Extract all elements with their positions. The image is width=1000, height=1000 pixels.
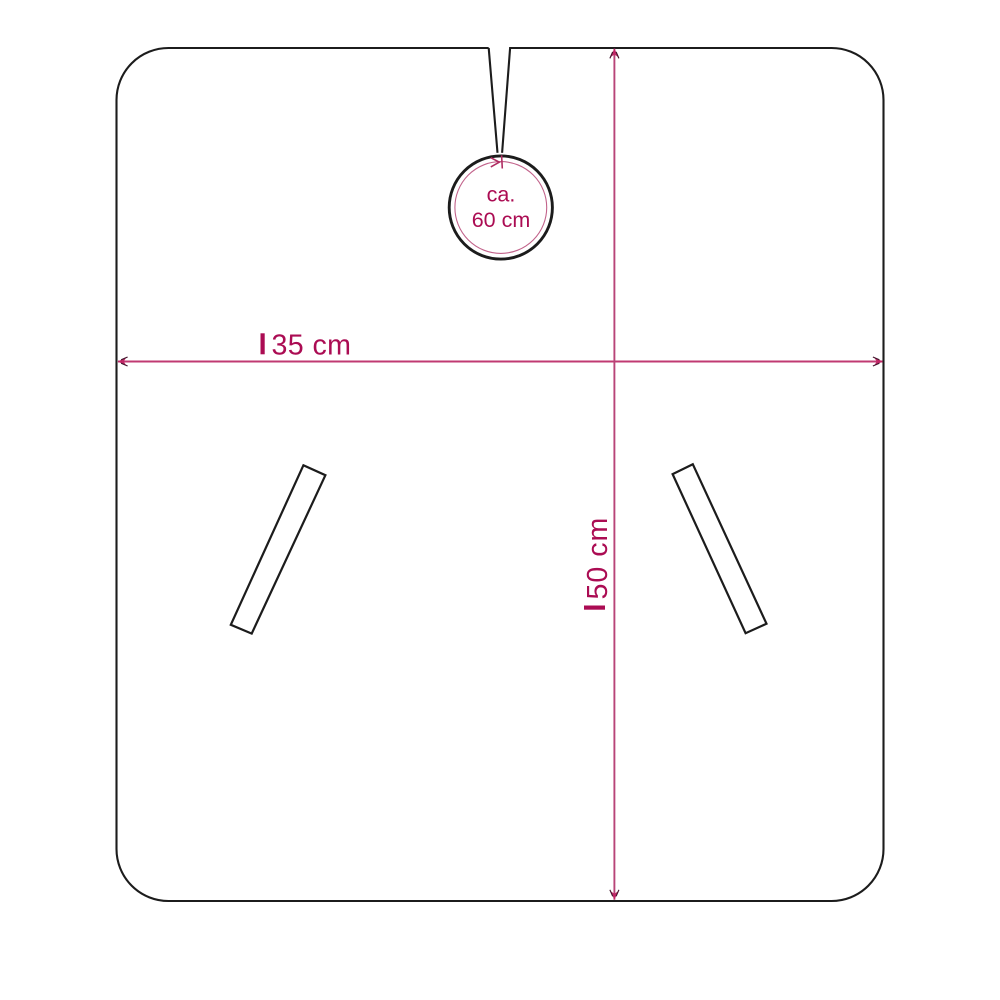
svg-text:50 cm: 50 cm	[582, 517, 614, 600]
svg-text:ca.: ca.	[487, 183, 516, 207]
svg-text:60 cm: 60 cm	[472, 208, 531, 232]
svg-text:35 cm: 35 cm	[272, 329, 352, 361]
